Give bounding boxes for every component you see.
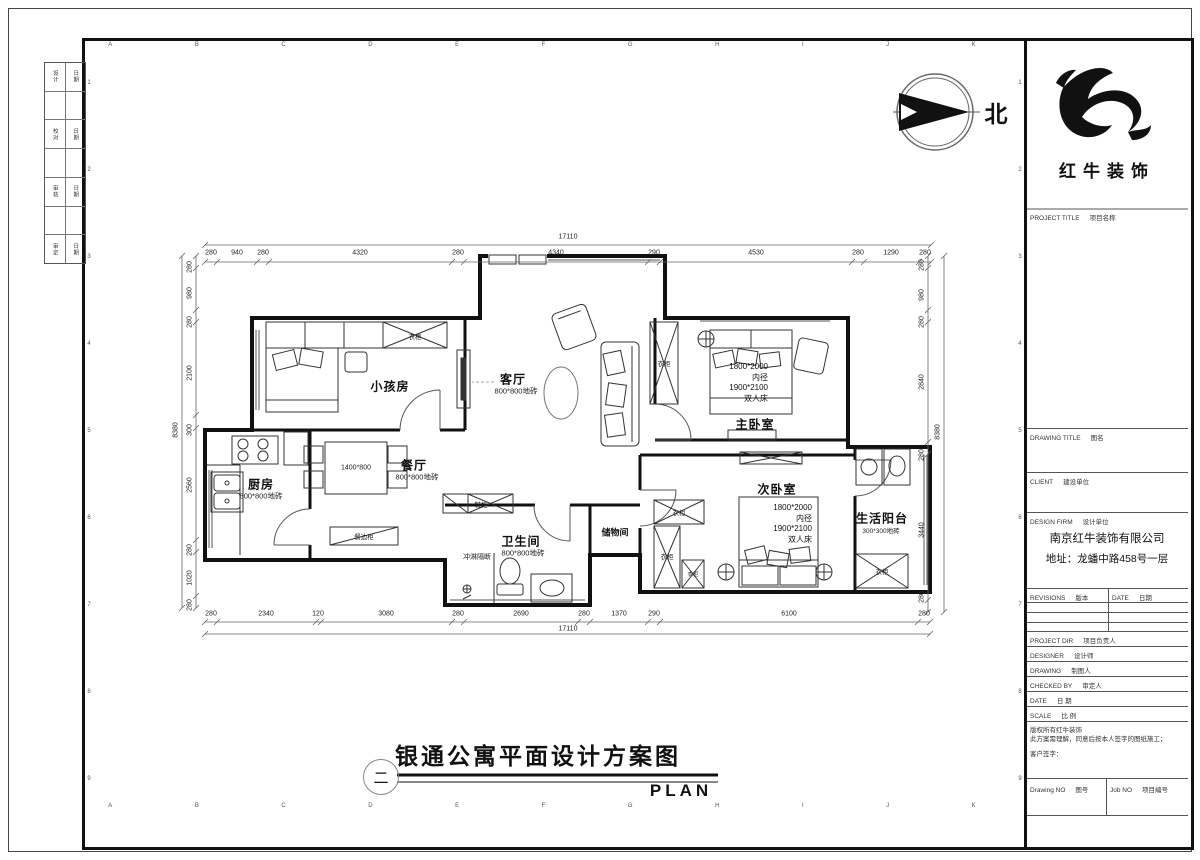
floor-plan-svg <box>0 0 1200 860</box>
dim: 2560 <box>187 477 194 493</box>
dim: 3080 <box>378 611 394 618</box>
dim: 2840 <box>919 374 926 390</box>
label-shower-partition: 冲淋隔断 <box>463 552 491 562</box>
dim-right-total: 8380 <box>935 424 942 440</box>
dim: 280 <box>919 449 926 461</box>
label-wardrobe: 衣柜 <box>661 551 674 561</box>
dim: 280 <box>918 611 930 618</box>
dim: 1290 <box>883 250 899 257</box>
dim: 6100 <box>781 611 797 618</box>
room-note-dining: 800*800地砖 <box>396 472 439 483</box>
dim: 2340 <box>258 611 274 618</box>
company-name: 红牛装饰 <box>1026 157 1188 182</box>
room-label-balcony: 生活阳台 <box>856 510 908 527</box>
dim: 280 <box>205 611 217 618</box>
dim: 1020 <box>187 570 194 586</box>
dim: 280 <box>919 250 931 257</box>
dim-left-total: 8380 <box>173 422 180 438</box>
tb-client: CLIENT建设单位 <box>1030 476 1089 486</box>
dim: 280 <box>452 250 464 257</box>
copyright-note: 版权所有红牛装饰 此方案需理解，同意后按本人签字的图纸施工； 客户签字： <box>1030 726 1185 759</box>
dim-top-total: 17110 <box>559 234 578 241</box>
dim: 940 <box>231 250 243 257</box>
tb-drawing-title: DRAWING TITLE图名 <box>1030 432 1104 442</box>
tb-project-title: PROJECT TITLE项目名称 <box>1030 212 1116 222</box>
label-table-size: 1400*800 <box>341 465 371 472</box>
dim: 280 <box>205 250 217 257</box>
dim: 280 <box>452 611 464 618</box>
tb-project-dir: PROJECT DIR项目负责人 <box>1030 635 1116 645</box>
dim: 280 <box>187 599 194 611</box>
dim: 280 <box>919 316 926 328</box>
tb-drawing-no: Drawing NO图号 <box>1030 784 1088 794</box>
room-label-second: 次卧室 <box>757 481 796 498</box>
master-bed-annotation: 1800*2000 内径 1900*2100 双人床 <box>696 362 768 404</box>
room-label-storage: 储物间 <box>601 526 628 539</box>
dim: 280 <box>187 544 194 556</box>
dim: 980 <box>919 289 926 301</box>
dim: 4530 <box>748 250 764 257</box>
label-wardrobe: 衣柜 <box>658 358 671 368</box>
second-bed-annotation: 1800*2000 内径 1900*2100 双人床 <box>740 503 812 545</box>
room-note-bath: 800*800地砖 <box>502 548 545 559</box>
dim: 290 <box>648 250 660 257</box>
label-shoe-cabinet: 鞋柜 <box>475 499 488 509</box>
sheet-title: 银通公寓平面设计方案图 <box>395 737 681 771</box>
dim: 120 <box>312 611 324 618</box>
room-label-kids: 小孩房 <box>370 378 409 395</box>
dim: 290 <box>648 611 660 618</box>
dim: 2100 <box>187 365 194 381</box>
company-logo <box>1056 68 1151 140</box>
dim: 280 <box>187 316 194 328</box>
tb-job-no: Job NO项目编号 <box>1110 784 1168 794</box>
dim: 280 <box>257 250 269 257</box>
dim: 280 <box>919 591 926 603</box>
drawing-sheet: ABCDEFGHIJK ABCDEFGHIJK 123456789 123456… <box>0 0 1200 860</box>
tb-designer: DESIGNER设计师 <box>1030 650 1093 660</box>
dim: 1370 <box>611 611 627 618</box>
room-label-master: 主卧室 <box>735 416 774 433</box>
dim: 4340 <box>548 250 564 257</box>
tb-date-header: DATE日期 <box>1112 592 1152 602</box>
dim-bottom-total: 17110 <box>559 626 578 633</box>
tb-date: DATE日 期 <box>1030 695 1072 705</box>
dim: 3440 <box>919 522 926 538</box>
dim: 280 <box>578 611 590 618</box>
tb-drawing-by: DRAWING制图人 <box>1030 665 1091 675</box>
sheet-number-badge: 二 <box>363 759 399 795</box>
label-wardrobe: 衣柜 <box>673 507 686 517</box>
room-note-kitchen: 800*800地砖 <box>240 491 283 502</box>
tb-checked-by: CHECKED BY审定人 <box>1030 680 1102 690</box>
design-firm-name: 南京红牛装饰有限公司 <box>1026 530 1188 546</box>
dim: 280 <box>187 261 194 273</box>
label-wardrobe: 衣柜 <box>409 331 422 341</box>
north-arrow-icon <box>893 74 980 150</box>
label-sideboard: 餐边柜 <box>354 531 374 541</box>
label-wardrobe: 衣柜 <box>876 566 889 576</box>
tb-scale: SCALE比 例 <box>1030 710 1076 720</box>
dim: 300 <box>187 424 194 436</box>
dim: 280 <box>852 250 864 257</box>
north-label: 北 <box>985 95 1008 129</box>
dim: 280 <box>919 259 926 271</box>
dim: 4320 <box>352 250 368 257</box>
dim: 2690 <box>513 611 529 618</box>
design-firm-address: 地址：龙蟠中路458号一层 <box>1026 551 1188 566</box>
sheet-subtitle: PLAN <box>650 781 712 801</box>
dim: 980 <box>187 287 194 299</box>
label-wardrobe: 衣柜 <box>687 570 698 578</box>
tb-revisions-header: REVISIONS版本 <box>1030 592 1088 602</box>
tb-design-firm: DESIGN FIRM设计单位 <box>1030 516 1109 526</box>
room-note-balcony: 300*300地砖 <box>862 525 899 535</box>
room-note-living: 800*800地砖 <box>495 386 538 397</box>
